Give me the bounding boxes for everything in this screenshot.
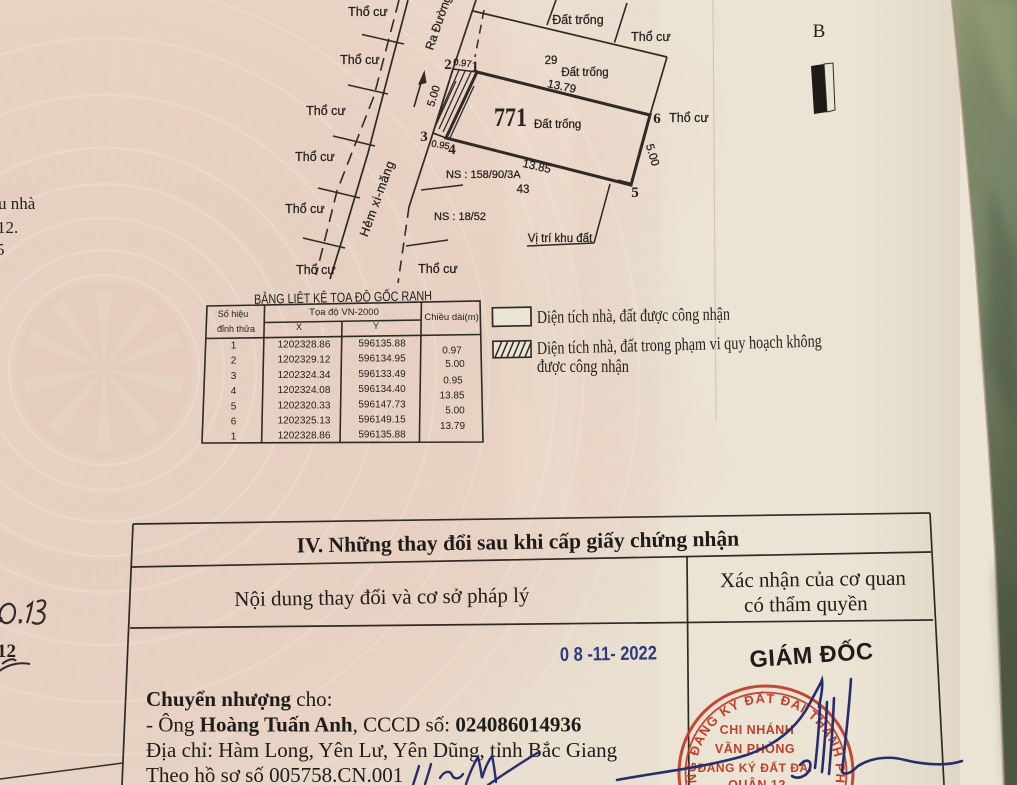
svg-text:Tọa độ VN-2000: Tọa độ VN-2000 — [309, 307, 379, 318]
svg-text:596135.88: 596135.88 — [358, 339, 406, 350]
svg-text:1202328.86: 1202328.86 — [278, 340, 331, 351]
svg-text:3: 3 — [231, 371, 237, 382]
svg-text:1202325.13: 1202325.13 — [278, 416, 331, 427]
svg-text:29: 29 — [545, 55, 558, 67]
svg-text:6: 6 — [653, 111, 661, 127]
svg-text:596134.95: 596134.95 — [358, 354, 406, 365]
svg-text:5: 5 — [631, 185, 639, 201]
svg-text:Đất trống: Đất trống — [534, 119, 581, 131]
svg-text:QUẬN 12: QUẬN 12 — [728, 777, 786, 785]
svg-text:Thổ cư: Thổ cư — [306, 104, 346, 118]
svg-text:5.00: 5.00 — [445, 406, 465, 417]
svg-text:Theo hồ sơ số 005758.CN.001: Theo hồ sơ số 005758.CN.001 — [146, 763, 403, 785]
svg-text:4: 4 — [231, 386, 237, 397]
svg-text:B: B — [813, 21, 826, 42]
svg-text:771: 771 — [494, 103, 527, 132]
svg-text:đỉnh thửa: đỉnh thửa — [217, 324, 255, 334]
svg-text:1: 1 — [471, 59, 479, 75]
svg-text:1202328.86: 1202328.86 — [278, 431, 331, 442]
svg-text:Đất trống: Đất trống — [552, 13, 603, 27]
svg-text:- Ông Hoàng Tuấn Anh, CCCD số:: - Ông Hoàng Tuấn Anh, CCCD số: 024086014… — [146, 713, 581, 737]
svg-text:6: 6 — [231, 417, 237, 428]
svg-text:Y: Y — [373, 321, 379, 331]
svg-text:Số hiệu: Số hiệu — [218, 309, 249, 319]
svg-text:596134.40: 596134.40 — [358, 384, 406, 395]
svg-text:X: X — [296, 322, 302, 332]
svg-text:596149.15: 596149.15 — [358, 415, 406, 426]
svg-text:1202324.34: 1202324.34 — [278, 370, 331, 381]
svg-text:Chuyển nhượng cho:: Chuyển nhượng cho: — [146, 687, 332, 711]
svg-text:13.79: 13.79 — [440, 421, 465, 432]
svg-text:5.00: 5.00 — [445, 359, 465, 370]
svg-text:2: 2 — [231, 356, 237, 367]
svg-text:Nội dung thay đổi và cơ sở phá: Nội dung thay đổi và cơ sở pháp lý — [234, 583, 530, 611]
svg-text:3: 3 — [420, 129, 428, 145]
svg-text:43: 43 — [517, 184, 530, 196]
svg-text:NS : 18/52: NS : 18/52 — [434, 211, 486, 223]
svg-text:5: 5 — [231, 401, 237, 412]
svg-text:Thổ cư: Thổ cư — [418, 262, 458, 276]
svg-text:được công nhận: được công nhận — [537, 356, 629, 376]
svg-text:1: 1 — [231, 432, 237, 443]
svg-text:Thổ cư: Thổ cư — [631, 30, 671, 44]
svg-text:Địa chỉ: Hàm Long, Yên Lư, Yên: Địa chỉ: Hàm Long, Yên Lư, Yên Dũng, tỉn… — [146, 738, 618, 762]
svg-text:1202329.12: 1202329.12 — [278, 355, 331, 366]
svg-text:Thổ cư: Thổ cư — [296, 263, 336, 277]
svg-text:0 8 -11- 2022: 0 8 -11- 2022 — [560, 642, 657, 666]
svg-text:596133.49: 596133.49 — [358, 369, 406, 380]
svg-text:u nhà: u nhà — [0, 194, 36, 213]
svg-text:Thổ cư: Thổ cư — [340, 53, 380, 67]
svg-text:13.85: 13.85 — [439, 391, 464, 402]
svg-text:Chiều dài(m): Chiều dài(m) — [424, 312, 478, 323]
svg-text:Thổ cư: Thổ cư — [285, 202, 325, 216]
svg-text:0.97: 0.97 — [442, 346, 462, 357]
svg-text:0.95: 0.95 — [443, 376, 463, 387]
svg-text:Thổ cư: Thổ cư — [669, 111, 709, 125]
svg-text:1: 1 — [231, 341, 237, 352]
svg-text:Thổ cư: Thổ cư — [348, 5, 388, 19]
svg-text:Diện tích nhà, đất được công n: Diện tích nhà, đất được công nhận — [537, 304, 730, 327]
svg-text:NS : 158/90/3A: NS : 158/90/3A — [446, 169, 521, 181]
svg-text:Đất trống: Đất trống — [561, 67, 608, 79]
svg-text:1202320.33: 1202320.33 — [278, 400, 331, 411]
svg-text:5: 5 — [0, 240, 5, 259]
svg-text:4: 4 — [448, 142, 456, 158]
svg-text:12.: 12. — [0, 218, 18, 237]
svg-text:VĂN PHÒNG: VĂN PHÒNG — [715, 741, 795, 756]
svg-text:596135.88: 596135.88 — [358, 430, 406, 441]
svg-text:2: 2 — [444, 57, 452, 73]
svg-text:Vị trí khu đất: Vị trí khu đất — [528, 233, 593, 245]
svg-text:596147.73: 596147.73 — [358, 399, 406, 410]
svg-text:Xác nhận của cơ quan: Xác nhận của cơ quan — [720, 566, 907, 593]
svg-text:Thổ cư: Thổ cư — [295, 150, 335, 164]
svg-text:1202324.08: 1202324.08 — [278, 385, 331, 396]
svg-text:có thẩm quyền: có thẩm quyền — [744, 591, 868, 617]
